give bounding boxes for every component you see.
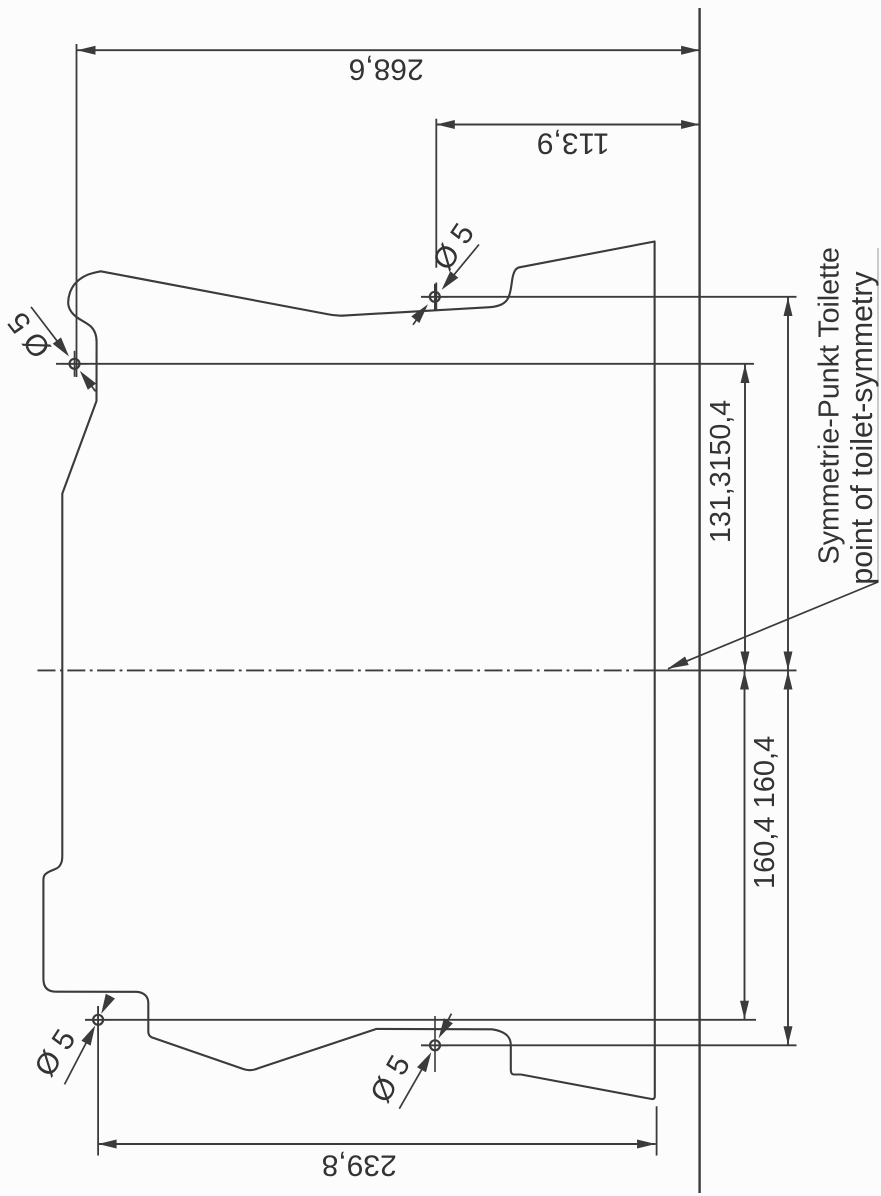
svg-text:160,4 160,4: 160,4 160,4 (749, 736, 781, 889)
svg-text:113,9: 113,9 (537, 127, 610, 160)
svg-text:268,6: 268,6 (349, 52, 424, 85)
svg-text:239,8: 239,8 (322, 1148, 397, 1181)
svg-text:point of toilet-symmetry: point of toilet-symmetry (846, 271, 879, 585)
svg-text:131,3150,4: 131,3150,4 (705, 400, 737, 543)
svg-text:Symmetrie-Punkt Toilette: Symmetrie-Punkt Toilette (814, 247, 846, 564)
